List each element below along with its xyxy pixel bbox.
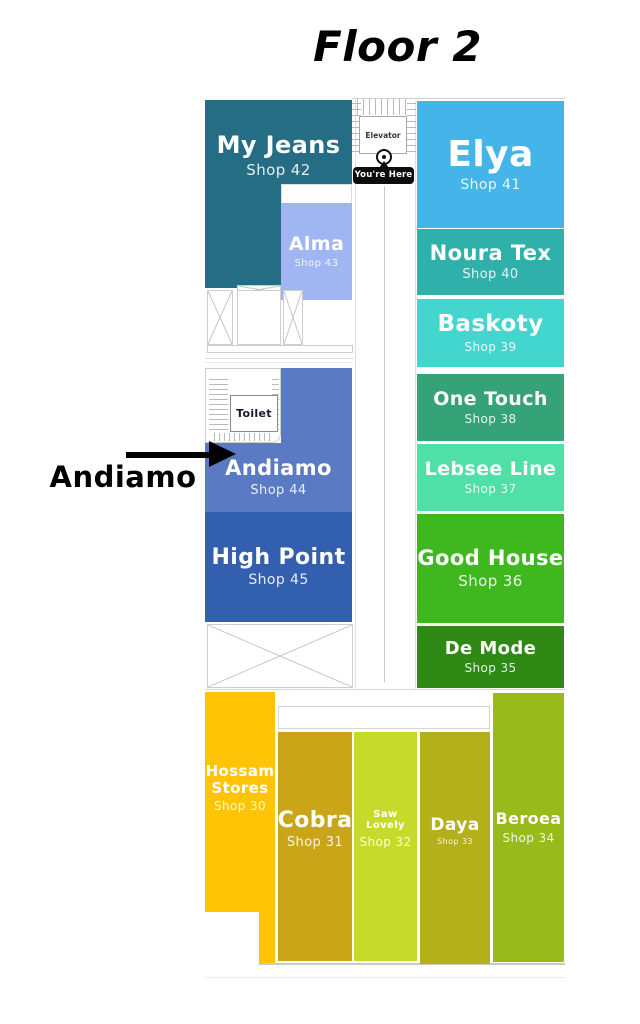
shop-name: Daya	[430, 816, 479, 834]
shop-name: Andiamo	[225, 457, 332, 480]
shop-elya: Elya Shop 41	[417, 101, 564, 228]
shop-alma: Alma Shop 43	[281, 203, 352, 300]
shop-name: Hossam Stores	[205, 763, 275, 795]
andiamo-callout-label: Andiamo	[43, 460, 203, 494]
shop-hossam-stores-extension	[259, 912, 275, 963]
shop-name: High Point	[212, 546, 346, 570]
shop-baskoty: Baskoty Shop 39	[417, 299, 564, 367]
shop-daya: Daya Shop 33	[420, 732, 490, 964]
floor-notch	[281, 184, 352, 204]
shop-one-touch: One Touch Shop 38	[417, 374, 564, 441]
escalator-box-right	[283, 290, 303, 345]
shop-number: Shop 45	[248, 572, 308, 588]
shop-andiamo-extension	[281, 368, 352, 444]
floor-map: Floor 2 My Jeans Shop 42 Alma Shop 43 To…	[0, 0, 640, 1024]
shop-lebsee-line: Lebsee Line Shop 37	[417, 444, 564, 511]
andiamo-callout-arrowhead-icon	[209, 441, 236, 467]
shop-number: Shop 41	[460, 177, 520, 193]
shop-name: De Mode	[445, 639, 537, 658]
shop-number: Shop 39	[464, 340, 516, 354]
shop-name: Alma	[289, 234, 344, 255]
shop-number: Shop 38	[464, 412, 516, 426]
shop-number: Shop 43	[295, 258, 339, 269]
shop-hossam-stores: Hossam Stores Shop 30	[205, 692, 275, 912]
andiamo-callout-arrow	[126, 452, 210, 458]
shop-name: Lebsee Line	[425, 459, 557, 480]
escalator-box-left	[207, 290, 233, 345]
page-title: Floor 2	[225, 22, 570, 71]
shop-name: Elya	[447, 136, 533, 175]
shop-number: Shop 32	[359, 835, 411, 849]
shop-name: Good House	[417, 547, 563, 570]
shop-name: Noura Tex	[430, 242, 552, 265]
shop-name: Cobra	[278, 809, 353, 833]
shop-my-jeans: My Jeans Shop 42	[205, 100, 352, 186]
corridor-left-line	[355, 100, 356, 689]
plan-bottom-shadow-line	[205, 977, 565, 978]
walkway-line-2	[205, 362, 353, 363]
shop-high-point: High Point Shop 45	[205, 512, 352, 622]
shop-number: Shop 36	[458, 572, 522, 590]
toilet-stall-hatch-bottom	[214, 433, 272, 441]
toilet-stall-hatch-left	[209, 379, 228, 431]
shop-de-mode: De Mode Shop 35	[417, 626, 564, 688]
stair-void-box	[207, 624, 353, 688]
shop-beroea: Beroea Shop 34	[493, 693, 564, 962]
shop-name: Saw Lovely	[354, 810, 417, 832]
bottom-corridor	[278, 706, 490, 729]
shop-name: Baskoty	[437, 312, 543, 337]
shop-name: One Touch	[433, 389, 548, 410]
escalator-box-middle	[237, 290, 281, 345]
corridor-center-line	[384, 186, 385, 682]
escalator-walkway	[207, 345, 353, 353]
corridor-bottom-line	[205, 689, 565, 690]
you-are-here-badge: You're Here	[353, 167, 414, 184]
shop-good-house: Good House Shop 36	[417, 514, 564, 623]
shop-number: Shop 40	[462, 267, 518, 282]
elevator-hatch-top	[357, 99, 408, 115]
shop-number: Shop 42	[246, 161, 310, 179]
shop-number: Shop 37	[464, 482, 516, 496]
walkway-line	[205, 358, 353, 359]
shop-number: Shop 35	[464, 661, 516, 675]
corridor-right-line	[415, 101, 416, 689]
shop-number: Shop 33	[437, 837, 473, 846]
shop-number: Shop 34	[502, 831, 554, 845]
shop-number: Shop 44	[250, 483, 306, 498]
shop-name: Beroea	[496, 810, 562, 827]
shop-noura-tex: Noura Tex Shop 40	[417, 229, 564, 295]
shop-cobra: Cobra Shop 31	[278, 732, 352, 961]
shop-number: Shop 30	[214, 799, 266, 813]
shop-name: My Jeans	[217, 133, 341, 159]
toilet-room: Toilet	[205, 368, 281, 443]
plan-bottom-border	[259, 963, 565, 965]
toilet-label: Toilet	[230, 395, 278, 432]
target-dot	[382, 155, 386, 159]
shop-my-jeans-extension	[205, 185, 281, 288]
shop-saw-lovely: Saw Lovely Shop 32	[354, 732, 417, 961]
shop-number: Shop 31	[287, 835, 343, 850]
stair-treads-right	[407, 103, 416, 153]
